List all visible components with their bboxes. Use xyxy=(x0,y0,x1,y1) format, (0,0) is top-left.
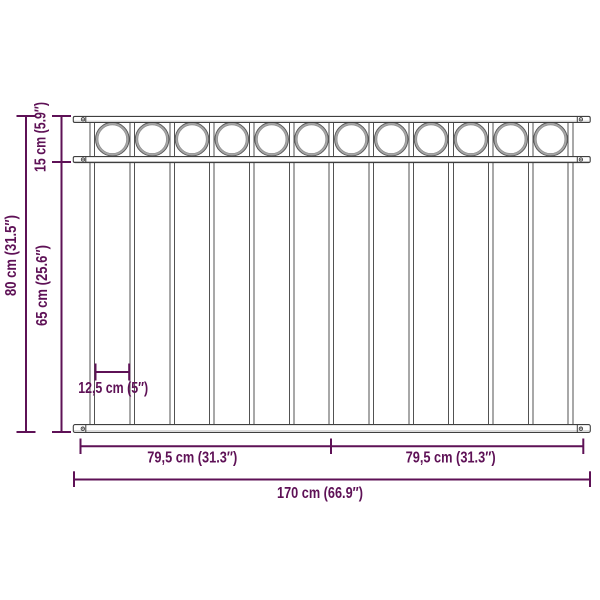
svg-text:12,5 cm (5″): 12,5 cm (5″) xyxy=(78,380,148,397)
svg-text:79,5 cm (31.3″): 79,5 cm (31.3″) xyxy=(147,450,237,467)
svg-text:15 cm (5.9″): 15 cm (5.9″) xyxy=(33,102,50,172)
svg-text:170 cm (66.9″): 170 cm (66.9″) xyxy=(277,485,363,502)
svg-text:80 cm (31.5″): 80 cm (31.5″) xyxy=(3,215,20,296)
svg-text:65 cm (25.6″): 65 cm (25.6″) xyxy=(34,245,51,326)
svg-text:79,5 cm (31.3″): 79,5 cm (31.3″) xyxy=(406,450,496,467)
